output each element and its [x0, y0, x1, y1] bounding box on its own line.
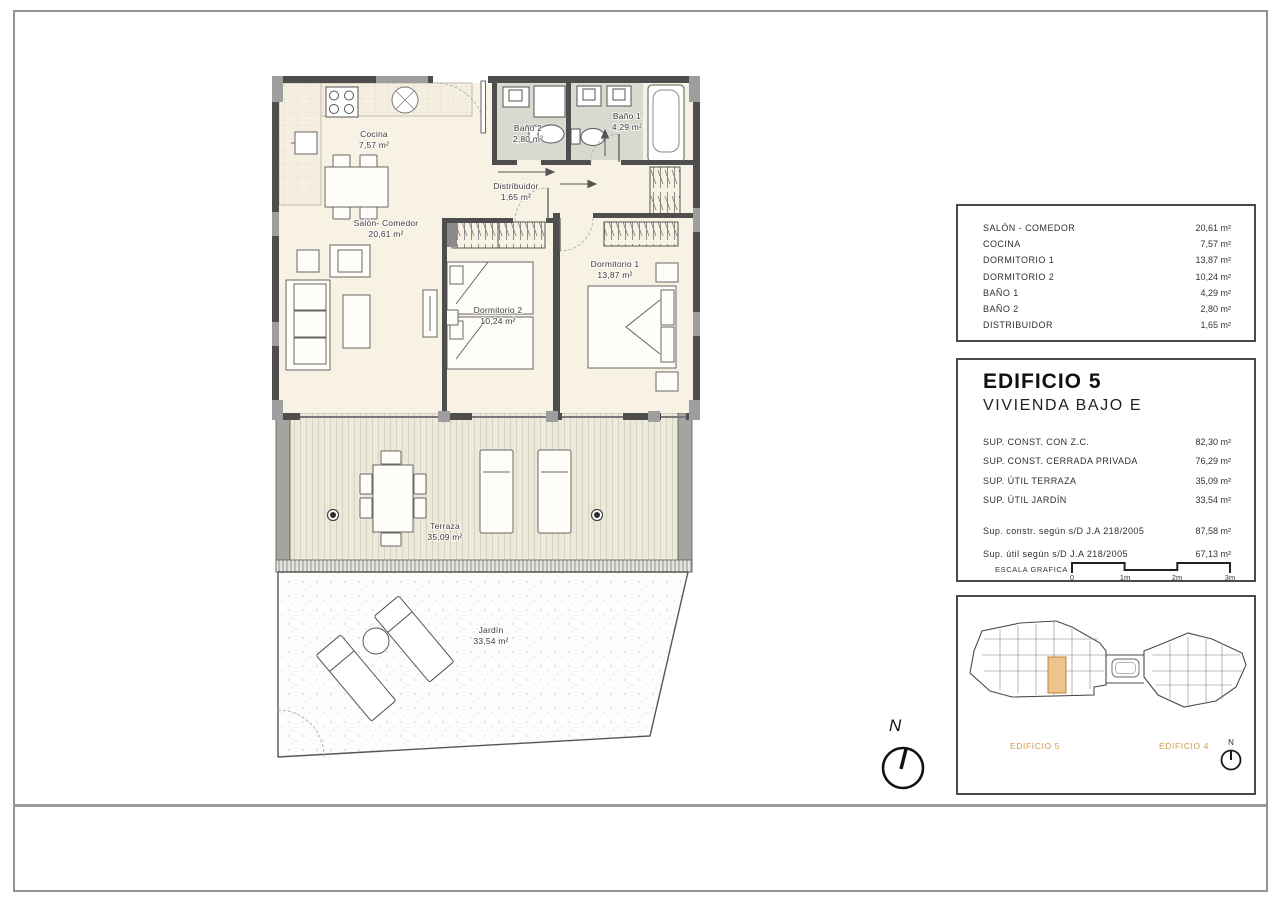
- surface-rows: SUP. CONST. CON Z.C.82,30 m² SUP. CONST.…: [983, 437, 1231, 515]
- surface-row: SUP. CONST. CERRADA PRIVADA76,29 m²: [983, 456, 1231, 475]
- surface-row: SUP. CONST. CON Z.C.82,30 m²: [983, 437, 1231, 456]
- edificio5-label: EDIFICIO 5: [1010, 741, 1060, 751]
- entrance-door-leaf: [481, 81, 486, 133]
- areas-table-panel: SALÓN - COMEDOR20,61 m² COCINA7,57 m² DO…: [956, 204, 1256, 342]
- surface-row: SUP. ÚTIL TERRAZA35,09 m²: [983, 476, 1231, 495]
- label-cocina: Cocina: [360, 129, 388, 139]
- plan-sheet: { "plan": { "cocina": {"name": "Cocina",…: [0, 0, 1280, 904]
- legal-row: Sup. constr. según s/D J.A 218/200587,58…: [983, 526, 1231, 549]
- table-row: SALÓN - COMEDOR20,61 m²: [983, 223, 1231, 239]
- terrace: [276, 413, 692, 572]
- building-title: EDIFICIO 5: [983, 370, 1102, 394]
- table-row: BAÑO 14,29 m²: [983, 288, 1231, 304]
- label-distribuidor: Distribuidor: [493, 181, 538, 191]
- scale-ticks: 0 1m 2m 3m: [1071, 573, 1231, 583]
- svg-text:2,80 m²: 2,80 m²: [513, 134, 543, 144]
- footer-divider: [13, 804, 1266, 807]
- unit-subtitle: VIVIENDA BAJO E: [983, 397, 1142, 415]
- svg-text:20,61 m²: 20,61 m²: [368, 229, 403, 239]
- label-terraza: Terraza: [430, 521, 460, 531]
- nightstand-1: [656, 263, 678, 282]
- site-plan-panel: EDIFICIO 5 EDIFICIO 4 N: [956, 595, 1256, 795]
- kitchen-sink: [392, 87, 418, 113]
- site-north-compass: N: [1222, 738, 1241, 770]
- edificio4-label: EDIFICIO 4: [1159, 741, 1209, 751]
- table-row: COCINA7,57 m²: [983, 239, 1231, 255]
- bath1-toilet-tank: [571, 129, 580, 144]
- label-bano1: Baño 1: [613, 111, 641, 121]
- svg-text:4,29 m²: 4,29 m²: [612, 122, 642, 132]
- edificio4-outline: [1144, 633, 1246, 707]
- table-row: DORMITORIO 113,87 m²: [983, 255, 1231, 271]
- nightstand-2: [656, 372, 678, 391]
- coffee-table: [343, 295, 370, 348]
- garden-side-table: [363, 628, 389, 654]
- surface-row: SUP. ÚTIL JARDÍN33,54 m²: [983, 495, 1231, 514]
- label-dormitorio2: Dormitorio 2: [474, 305, 523, 315]
- svg-text:13,87 m²: 13,87 m²: [597, 270, 632, 280]
- floor-plan: Cocina 7,57 m² Salón- Comedor 20,61 m² B…: [258, 60, 708, 765]
- side-chair: [297, 250, 319, 272]
- svg-text:N: N: [1228, 738, 1234, 747]
- kitchen-appliance: [291, 132, 317, 154]
- graphic-scale: ESCALA GRAFICA 0 1m 2m 3m: [983, 558, 1231, 582]
- unit-info-panel: EDIFICIO 5 VIVIENDA BAJO E SUP. CONST. C…: [956, 358, 1256, 582]
- wardrobe-hall: [650, 167, 680, 215]
- label-dormitorio1: Dormitorio 1: [591, 259, 640, 269]
- svg-text:10,24 m²: 10,24 m²: [480, 316, 515, 326]
- scale-label: ESCALA GRAFICA: [995, 565, 1068, 574]
- site-pool: [1112, 659, 1139, 677]
- areas-table: SALÓN - COMEDOR20,61 m² COCINA7,57 m² DO…: [983, 223, 1231, 336]
- edificio5-outline: [970, 621, 1106, 697]
- bathroom-2: [497, 83, 566, 160]
- svg-text:7,57 m²: 7,57 m²: [359, 140, 389, 150]
- north-compass: N: [868, 716, 940, 796]
- table-row: BAÑO 22,80 m²: [983, 304, 1231, 320]
- svg-text:1,65 m²: 1,65 m²: [501, 192, 531, 202]
- svg-text:35,09 m²: 35,09 m²: [427, 532, 462, 542]
- north-label: N: [889, 716, 901, 736]
- wardrobe-dorm1: [604, 222, 678, 246]
- label-jardin: Jardín: [479, 625, 504, 635]
- garden: [278, 572, 688, 757]
- table-row: DISTRIBUIDOR1,65 m²: [983, 320, 1231, 336]
- table-row: DORMITORIO 210,24 m²: [983, 272, 1231, 288]
- site-plan-drawing: EDIFICIO 5 EDIFICIO 4 N: [960, 599, 1252, 791]
- compass-dial: [868, 736, 940, 796]
- label-salon: Salón- Comedor: [354, 218, 419, 228]
- highlighted-unit: [1048, 657, 1066, 693]
- bath2-shower: [534, 86, 565, 117]
- floor-plan-drawing: Cocina 7,57 m² Salón- Comedor 20,61 m² B…: [258, 60, 708, 765]
- kitchen-stove: [326, 87, 358, 117]
- label-bano2: Baño 2: [514, 123, 542, 133]
- terrace-railing: [276, 560, 692, 572]
- svg-text:33,54 m²: 33,54 m²: [473, 636, 508, 646]
